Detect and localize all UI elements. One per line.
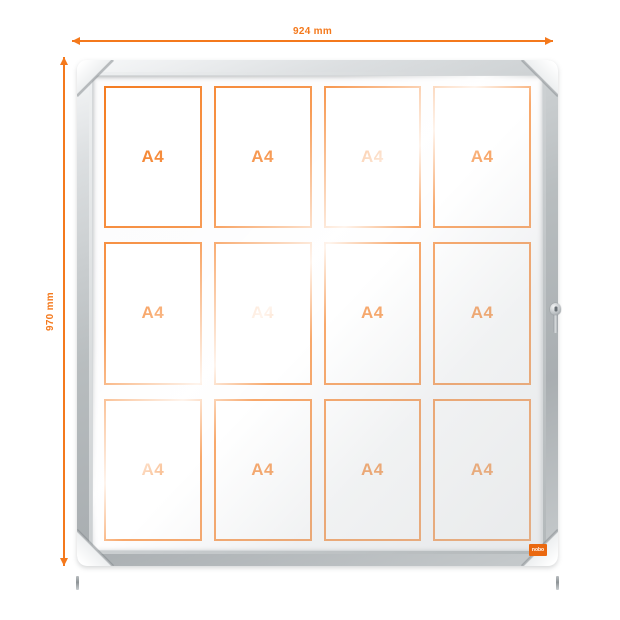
a4-sheet: A4 bbox=[214, 86, 312, 228]
lock-cylinder bbox=[550, 303, 561, 315]
dimension-width-line bbox=[72, 40, 553, 42]
a4-label: A4 bbox=[142, 303, 165, 323]
a4-label: A4 bbox=[471, 460, 494, 480]
dimension-height-label: 970 mm bbox=[45, 292, 56, 331]
a4-sheet: A4 bbox=[433, 399, 531, 541]
corner-cap-bottom-left bbox=[77, 529, 114, 566]
a4-sheet: A4 bbox=[104, 86, 202, 228]
dimension-height-label-wrap: 970 mm bbox=[42, 57, 58, 566]
sheet-grid: A4 A4 A4 A4 A4 A4 A4 A4 A4 A4 A4 A4 bbox=[104, 86, 531, 541]
a4-label: A4 bbox=[361, 460, 384, 480]
keyhole-icon bbox=[554, 307, 557, 312]
lock bbox=[549, 303, 562, 337]
a4-label: A4 bbox=[471, 303, 494, 323]
a4-label: A4 bbox=[361, 147, 384, 167]
a4-label: A4 bbox=[251, 460, 274, 480]
a4-sheet: A4 bbox=[214, 399, 312, 541]
mount-pin-right bbox=[556, 576, 559, 590]
dimension-arrow-left-icon bbox=[72, 37, 80, 45]
mount-pin-left bbox=[76, 576, 79, 590]
a4-sheet: A4 bbox=[104, 242, 202, 384]
a4-label: A4 bbox=[142, 460, 165, 480]
a4-sheet: A4 bbox=[214, 242, 312, 384]
a4-sheet: A4 bbox=[433, 86, 531, 228]
a4-label: A4 bbox=[142, 147, 165, 167]
a4-label: A4 bbox=[251, 147, 274, 167]
lock-body bbox=[553, 314, 558, 333]
a4-sheet: A4 bbox=[324, 242, 422, 384]
brand-logo: nobo bbox=[529, 544, 547, 556]
a4-sheet: A4 bbox=[324, 86, 422, 228]
dimension-arrow-down-icon bbox=[60, 558, 68, 566]
a4-sheet: A4 bbox=[324, 399, 422, 541]
dimension-width-label: 924 mm bbox=[72, 26, 553, 37]
notice-board-cabinet: A4 A4 A4 A4 A4 A4 A4 A4 A4 A4 A4 A4 bbox=[77, 60, 558, 566]
a4-label: A4 bbox=[361, 303, 384, 323]
a4-sheet: A4 bbox=[433, 242, 531, 384]
a4-label: A4 bbox=[471, 147, 494, 167]
corner-cap-top-right bbox=[521, 60, 558, 97]
dimension-height-line bbox=[63, 57, 65, 566]
dimension-arrow-right-icon bbox=[545, 37, 553, 45]
a4-sheet: A4 bbox=[104, 399, 202, 541]
dimension-arrow-up-icon bbox=[60, 57, 68, 65]
aluminium-frame: A4 A4 A4 A4 A4 A4 A4 A4 A4 A4 A4 A4 bbox=[77, 60, 558, 566]
a4-label: A4 bbox=[251, 303, 274, 323]
product-dimension-diagram: 924 mm 970 mm A4 A4 A4 A4 A4 A4 A4 A4 bbox=[0, 0, 620, 620]
corner-cap-top-left bbox=[77, 60, 114, 97]
display-panel: A4 A4 A4 A4 A4 A4 A4 A4 A4 A4 A4 A4 bbox=[93, 76, 542, 550]
